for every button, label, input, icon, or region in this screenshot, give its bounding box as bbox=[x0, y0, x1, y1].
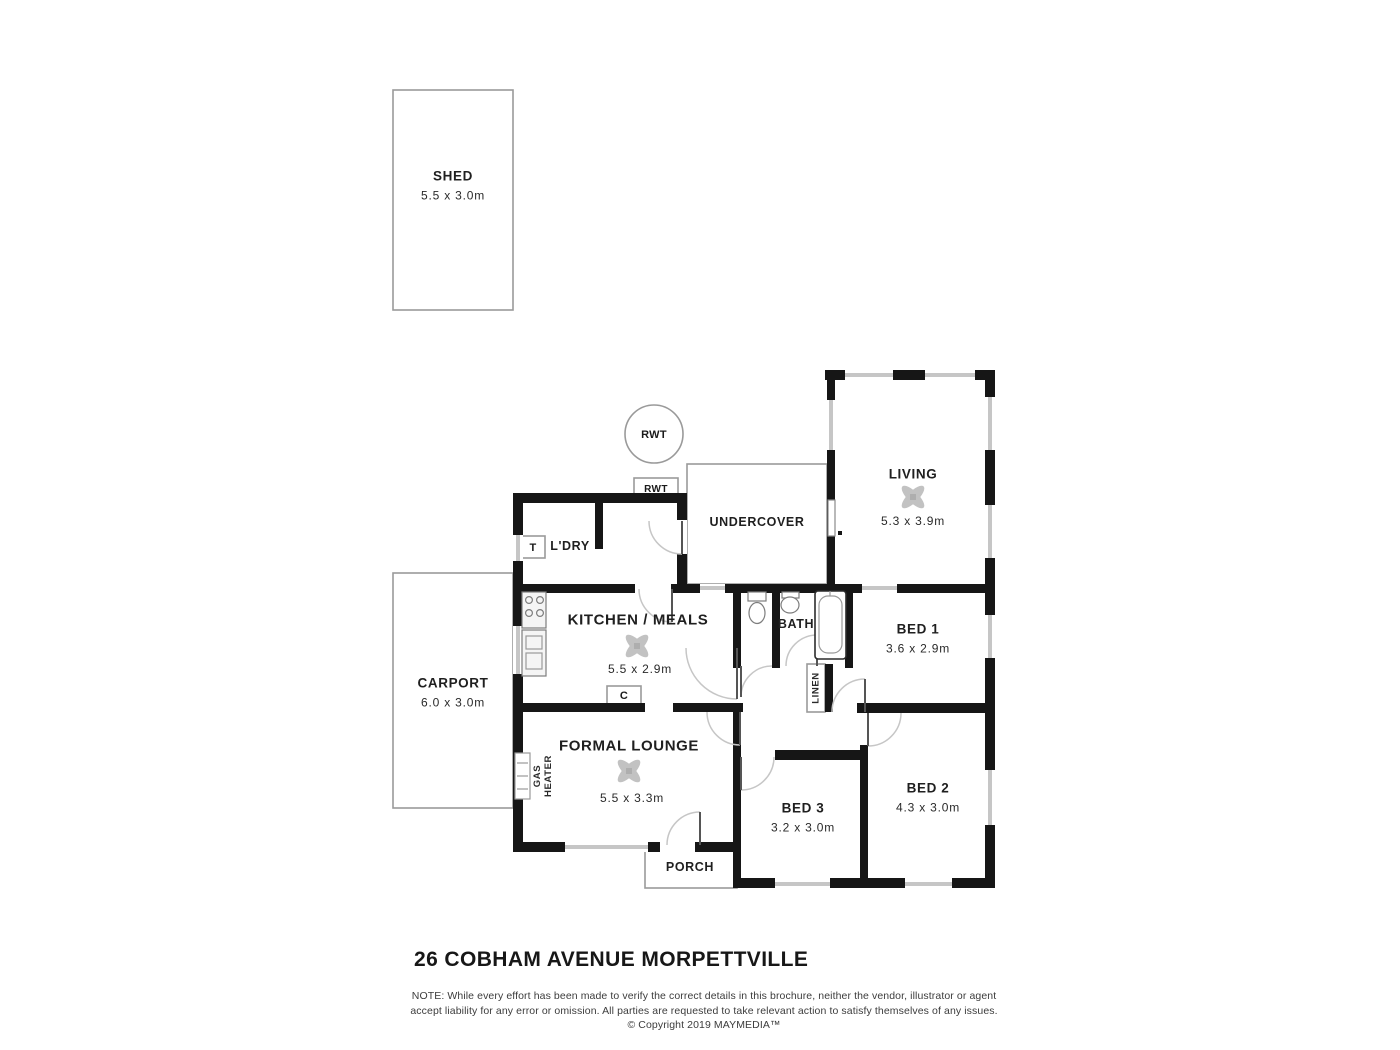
basin-icon bbox=[781, 592, 799, 613]
room-label-undercover: UNDERCOVER bbox=[710, 515, 805, 531]
laundry-name: L'DRY bbox=[550, 539, 590, 555]
carport-name: CARPORT bbox=[418, 676, 489, 693]
room-label-laundry: L'DRY bbox=[550, 539, 590, 555]
rwt-box-label: RWT bbox=[644, 478, 668, 498]
undercover-name: UNDERCOVER bbox=[710, 515, 805, 531]
trough-label: T bbox=[529, 537, 536, 557]
disclaimer-line-3: © Copyright 2019 MAYMEDIA™ bbox=[627, 1019, 780, 1031]
toilet-icon bbox=[748, 592, 766, 624]
lounge-dims: 5.5 x 3.3m bbox=[600, 791, 664, 806]
door-leaves bbox=[672, 521, 868, 845]
gas-heater-text-2: HEATER bbox=[543, 755, 554, 797]
room-label-kitchen: KITCHEN / MEALS bbox=[568, 612, 709, 631]
kitchen-dims: 5.5 x 2.9m bbox=[608, 662, 672, 677]
bath-name: BATH bbox=[778, 617, 814, 633]
gas-heater-icon bbox=[515, 753, 530, 799]
lounge-name: FORMAL LOUNGE bbox=[559, 738, 699, 757]
living-dims-label: 5.3 x 3.9m bbox=[881, 511, 945, 529]
room-label-bath: BATH bbox=[778, 617, 814, 633]
floorplan-page: SHED 5.5 x 3.0m CARPORT 6.0 x 3.0m RWT R… bbox=[0, 0, 1400, 1050]
bed3-dims: 3.2 x 3.0m bbox=[771, 820, 835, 835]
ceiling-fan-icon-lounge bbox=[615, 757, 644, 786]
room-label-living: LIVING bbox=[889, 467, 938, 484]
linen-label: LINEN bbox=[811, 672, 822, 704]
room-label-shed: SHED 5.5 x 3.0m bbox=[421, 169, 485, 204]
cupboard-text: C bbox=[620, 690, 628, 702]
porch-name: PORCH bbox=[666, 860, 714, 876]
ceiling-fan-icon-kitchen bbox=[623, 632, 652, 661]
bed3-name: BED 3 bbox=[771, 801, 835, 818]
shed-name: SHED bbox=[421, 169, 485, 186]
rwt-tank-label: RWT bbox=[641, 424, 667, 444]
trough-text: T bbox=[529, 542, 536, 554]
room-label-lounge: FORMAL LOUNGE bbox=[559, 738, 699, 757]
linen-text: LINEN bbox=[811, 672, 822, 704]
living-door-leaf bbox=[828, 500, 842, 536]
kitchen-dims-label: 5.5 x 2.9m bbox=[608, 659, 672, 677]
carport-dims: 6.0 x 3.0m bbox=[418, 695, 489, 710]
disclaimer: NOTE: While every effort has been made t… bbox=[408, 989, 1000, 1033]
sink-counter-icon bbox=[522, 630, 546, 676]
room-label-bed3: BED 3 3.2 x 3.0m bbox=[771, 801, 835, 836]
kitchen-name: KITCHEN / MEALS bbox=[568, 612, 709, 631]
room-label-bed1: BED 1 3.6 x 2.9m bbox=[886, 622, 950, 657]
page-title: 26 COBHAM AVENUE MORPETTVILLE bbox=[414, 948, 808, 972]
stove-icon bbox=[522, 592, 546, 628]
disclaimer-line-1: NOTE: While every effort has been made t… bbox=[412, 990, 996, 1002]
living-dims: 5.3 x 3.9m bbox=[881, 514, 945, 529]
room-label-bed2: BED 2 4.3 x 3.0m bbox=[896, 781, 960, 816]
bed1-name: BED 1 bbox=[886, 622, 950, 639]
floorplan-drawing bbox=[0, 0, 1400, 1050]
cupboard-label: C bbox=[620, 685, 628, 705]
disclaimer-line-2: accept liability for any error or omissi… bbox=[410, 1005, 997, 1017]
shed-dims: 5.5 x 3.0m bbox=[421, 188, 485, 203]
bathtub-icon bbox=[815, 591, 846, 659]
ceiling-fan-icon-living bbox=[899, 483, 928, 512]
living-name: LIVING bbox=[889, 467, 938, 484]
gas-heater-text-1: GAS bbox=[532, 755, 543, 797]
room-label-porch: PORCH bbox=[666, 860, 714, 876]
gas-heater-label: GAS HEATER bbox=[532, 755, 554, 797]
bed1-dims: 3.6 x 2.9m bbox=[886, 641, 950, 656]
rwt-box-text: RWT bbox=[644, 484, 668, 495]
rwt-tank-text: RWT bbox=[641, 429, 667, 441]
bed2-dims: 4.3 x 3.0m bbox=[896, 800, 960, 815]
room-label-carport: CARPORT 6.0 x 3.0m bbox=[418, 676, 489, 711]
lounge-dims-label: 5.5 x 3.3m bbox=[600, 788, 664, 806]
bed2-name: BED 2 bbox=[896, 781, 960, 798]
